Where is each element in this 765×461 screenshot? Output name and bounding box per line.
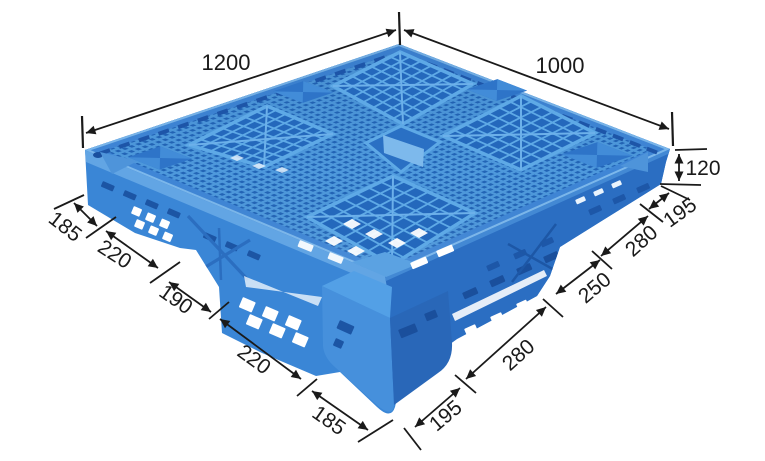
svg-text:120: 120	[685, 157, 720, 180]
svg-text:1200: 1200	[202, 50, 251, 75]
svg-text:1000: 1000	[536, 53, 585, 78]
